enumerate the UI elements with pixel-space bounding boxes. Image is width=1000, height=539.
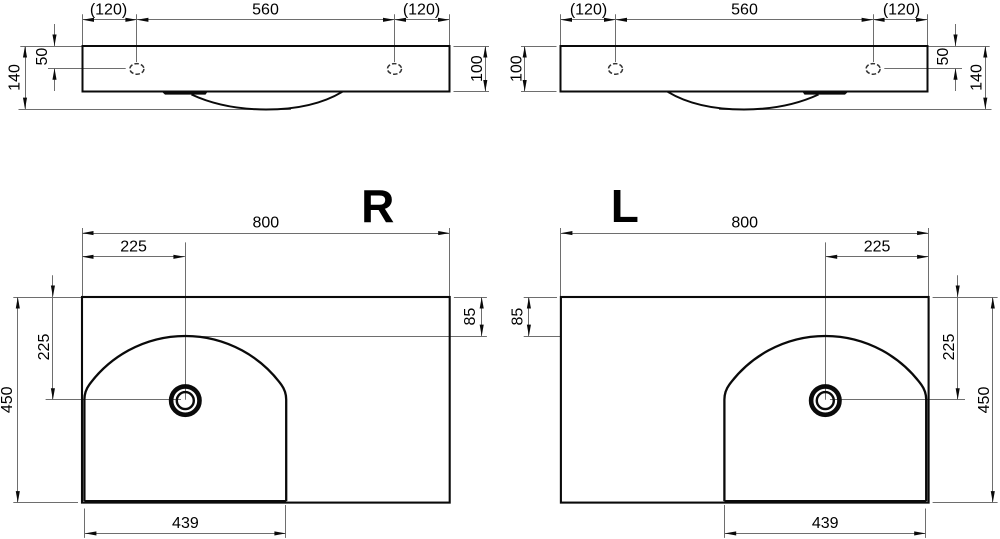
svg-text:140: 140 [6, 64, 23, 91]
svg-text:(120): (120) [90, 1, 127, 18]
svg-text:800: 800 [252, 215, 279, 232]
svg-text:800: 800 [731, 215, 758, 232]
svg-text:85: 85 [462, 308, 479, 326]
svg-text:439: 439 [812, 515, 839, 532]
svg-text:225: 225 [120, 238, 147, 255]
svg-text:100: 100 [509, 55, 526, 82]
svg-text:225: 225 [864, 238, 891, 255]
svg-text:(120): (120) [883, 1, 920, 18]
svg-text:450: 450 [0, 386, 16, 413]
svg-text:50: 50 [34, 48, 51, 66]
svg-text:450: 450 [976, 387, 993, 414]
svg-text:560: 560 [252, 1, 279, 18]
svg-text:(120): (120) [570, 1, 607, 18]
svg-text:225: 225 [36, 334, 53, 361]
svg-text:100: 100 [469, 55, 486, 82]
svg-text:140: 140 [968, 64, 985, 91]
svg-text:50: 50 [935, 48, 952, 66]
svg-text:R: R [361, 180, 394, 232]
svg-text:439: 439 [172, 515, 199, 532]
svg-text:85: 85 [510, 308, 527, 326]
svg-text:L: L [611, 180, 639, 232]
svg-text:225: 225 [941, 334, 958, 361]
svg-text:560: 560 [731, 1, 758, 18]
svg-text:(120): (120) [403, 1, 440, 18]
